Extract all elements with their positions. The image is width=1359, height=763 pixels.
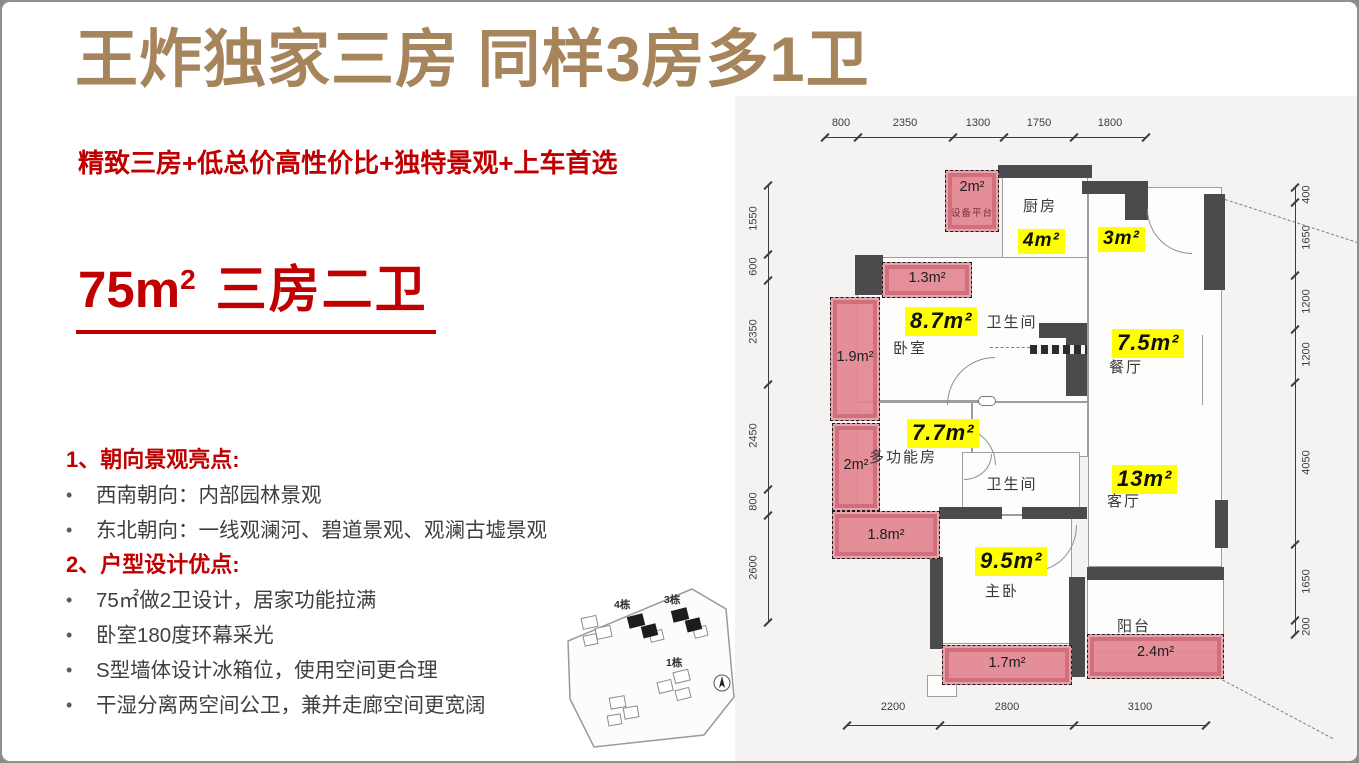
dim-label: 2800 (985, 701, 1029, 713)
dim-tick (763, 618, 772, 627)
dim-tick (1201, 721, 1210, 730)
room-name-bath1: 卫生间 (980, 311, 1044, 332)
site-plan: 4栋 3栋 1栋 (554, 579, 742, 751)
list-item: •东北朝向：一线观澜河、碧道景观、观澜古墟景观 (66, 513, 606, 548)
wall-demolish-hatch (1030, 345, 1087, 354)
bay-area-label: 1.9m² (830, 349, 880, 365)
dim-label: 800 (819, 117, 863, 129)
wall-segment (1204, 194, 1225, 290)
dim-label: 2450 (748, 414, 761, 458)
bay-area-label: 1.8m² (832, 527, 940, 543)
area-tag-entry: 3m² (1098, 227, 1145, 252)
wall-segment (1215, 500, 1228, 548)
bay-area-label: 2m² (945, 179, 999, 195)
bay-area-label: 2.4m² (1087, 644, 1224, 660)
dim-label: 3100 (1118, 701, 1162, 713)
wall-jog (1202, 335, 1203, 405)
dim-label: 600 (748, 245, 761, 289)
wall-segment (1022, 507, 1087, 519)
wall-segment (1082, 181, 1148, 194)
dim-label: 1200 (1301, 280, 1314, 324)
dim-tick (1141, 133, 1150, 142)
area-headline: 75m2三房二卫 (76, 248, 436, 334)
dim-label: 2350 (748, 310, 761, 354)
building-label: 3栋 (664, 592, 680, 607)
dim-label: 1650 (1301, 216, 1314, 260)
layout-type: 三房二卫 (216, 261, 428, 318)
dim-label: 200 (1301, 605, 1314, 649)
wall-segment (855, 255, 883, 295)
dim-line-bottom (847, 725, 1206, 726)
area-tag-bedroom: 8.7m² (905, 307, 977, 336)
list-item: •S型墙体设计冰箱位，使用空间更合理 (66, 653, 606, 688)
section-heading: 1、朝向景观亮点: (66, 443, 606, 478)
bay-area-label: 1.7m² (942, 655, 1072, 671)
dim-label: 1800 (1088, 117, 1132, 129)
area-value: 75m (78, 261, 180, 318)
building-label: 1栋 (666, 655, 682, 670)
list-item-text: S型墙体设计冰箱位，使用空间更合理 (96, 653, 438, 688)
wall-fridge-niche (1039, 323, 1087, 338)
list-item-text: 卧室180度环幕采光 (96, 618, 274, 653)
dim-label: 2200 (871, 701, 915, 713)
list-item-text: 干湿分离两空间公卫，兼并走廊空间更宽阔 (96, 688, 486, 723)
area-sup: 2 (180, 264, 196, 295)
list-item-text: 西南朝向：内部园林景观 (96, 478, 322, 513)
list-item-text: 东北朝向：一线观澜河、碧道景观、观澜古墟景观 (96, 513, 547, 548)
area-tag-dining: 7.5m² (1112, 329, 1184, 358)
area-tag-multi: 7.7m² (907, 419, 979, 448)
room-name-bedroom: 卧室 (880, 337, 940, 358)
dim-label: 1200 (1301, 333, 1314, 377)
bullet-icon: • (66, 653, 96, 688)
dim-label: 4050 (1301, 441, 1314, 485)
floor-plan: 800 2350 1300 1750 1800 1550 600 2350 24… (750, 107, 1359, 762)
subtitle: 精致三房+低总价高性价比+独特景观+上车首选 (78, 143, 618, 180)
dim-label: 400 (1301, 173, 1314, 217)
room-name-living: 客厅 (1094, 490, 1154, 511)
room-name-kitchen: 厨房 (1012, 195, 1068, 216)
wall-segment (1125, 194, 1148, 220)
dim-label: 1650 (1301, 560, 1314, 604)
list-item: •西南朝向：内部园林景观 (66, 478, 606, 513)
dim-line-top (825, 137, 1146, 138)
area-tag-master: 9.5m² (975, 547, 1047, 576)
bullet-icon: • (66, 618, 96, 653)
presentation-slide: 王炸独家三房 同样3房多1卫 精致三房+低总价高性价比+独特景观+上车首选 75… (0, 0, 1359, 763)
dim-label: 1300 (956, 117, 1000, 129)
dashed-partition (990, 347, 1030, 348)
area-tag-kitchen: 4m² (1018, 229, 1065, 254)
dim-label: 800 (748, 480, 761, 524)
dim-label: 1550 (748, 197, 761, 241)
wall-segment (939, 507, 1002, 519)
site-plan-drawing (554, 579, 742, 751)
bullet-icon: • (66, 583, 96, 618)
boundary-dashed-line (1218, 677, 1333, 739)
wall-segment (998, 165, 1092, 178)
room-name: 设备平台 (945, 205, 999, 219)
bullet-icon: • (66, 513, 96, 548)
list-item: •干湿分离两空间公卫，兼并走廊空间更宽阔 (66, 688, 606, 723)
building-label: 4栋 (614, 597, 630, 612)
room-name-multi: 多功能房 (857, 446, 949, 467)
page-title: 王炸独家三房 同样3房多1卫 (75, 18, 1085, 103)
bullet-icon: • (66, 688, 96, 723)
dim-line-right (1295, 187, 1296, 634)
room-name-master: 主卧 (972, 580, 1032, 601)
dim-label: 2600 (748, 546, 761, 590)
wall-segment (930, 557, 943, 649)
room-name-balcony: 阳台 (1104, 615, 1164, 636)
list-item: •75㎡做2卫设计，居家功能拉满 (66, 583, 606, 618)
bullet-icon: • (66, 478, 96, 513)
wall-segment (1087, 567, 1224, 580)
selling-points: 1、朝向景观亮点: •西南朝向：内部园林景观 •东北朝向：一线观澜河、碧道景观、… (66, 443, 606, 723)
list-item: •卧室180度环幕采光 (66, 618, 606, 653)
dim-label: 1750 (1017, 117, 1061, 129)
bay-area-label: 1.3m² (882, 270, 972, 286)
list-item-text: 75㎡做2卫设计，居家功能拉满 (96, 583, 376, 618)
section-heading: 2、户型设计优点: (66, 548, 606, 583)
dim-tick (1290, 630, 1299, 639)
dim-label: 2350 (883, 117, 927, 129)
room-name-bath2: 卫生间 (980, 473, 1044, 494)
room-name-dining: 餐厅 (1096, 356, 1156, 377)
